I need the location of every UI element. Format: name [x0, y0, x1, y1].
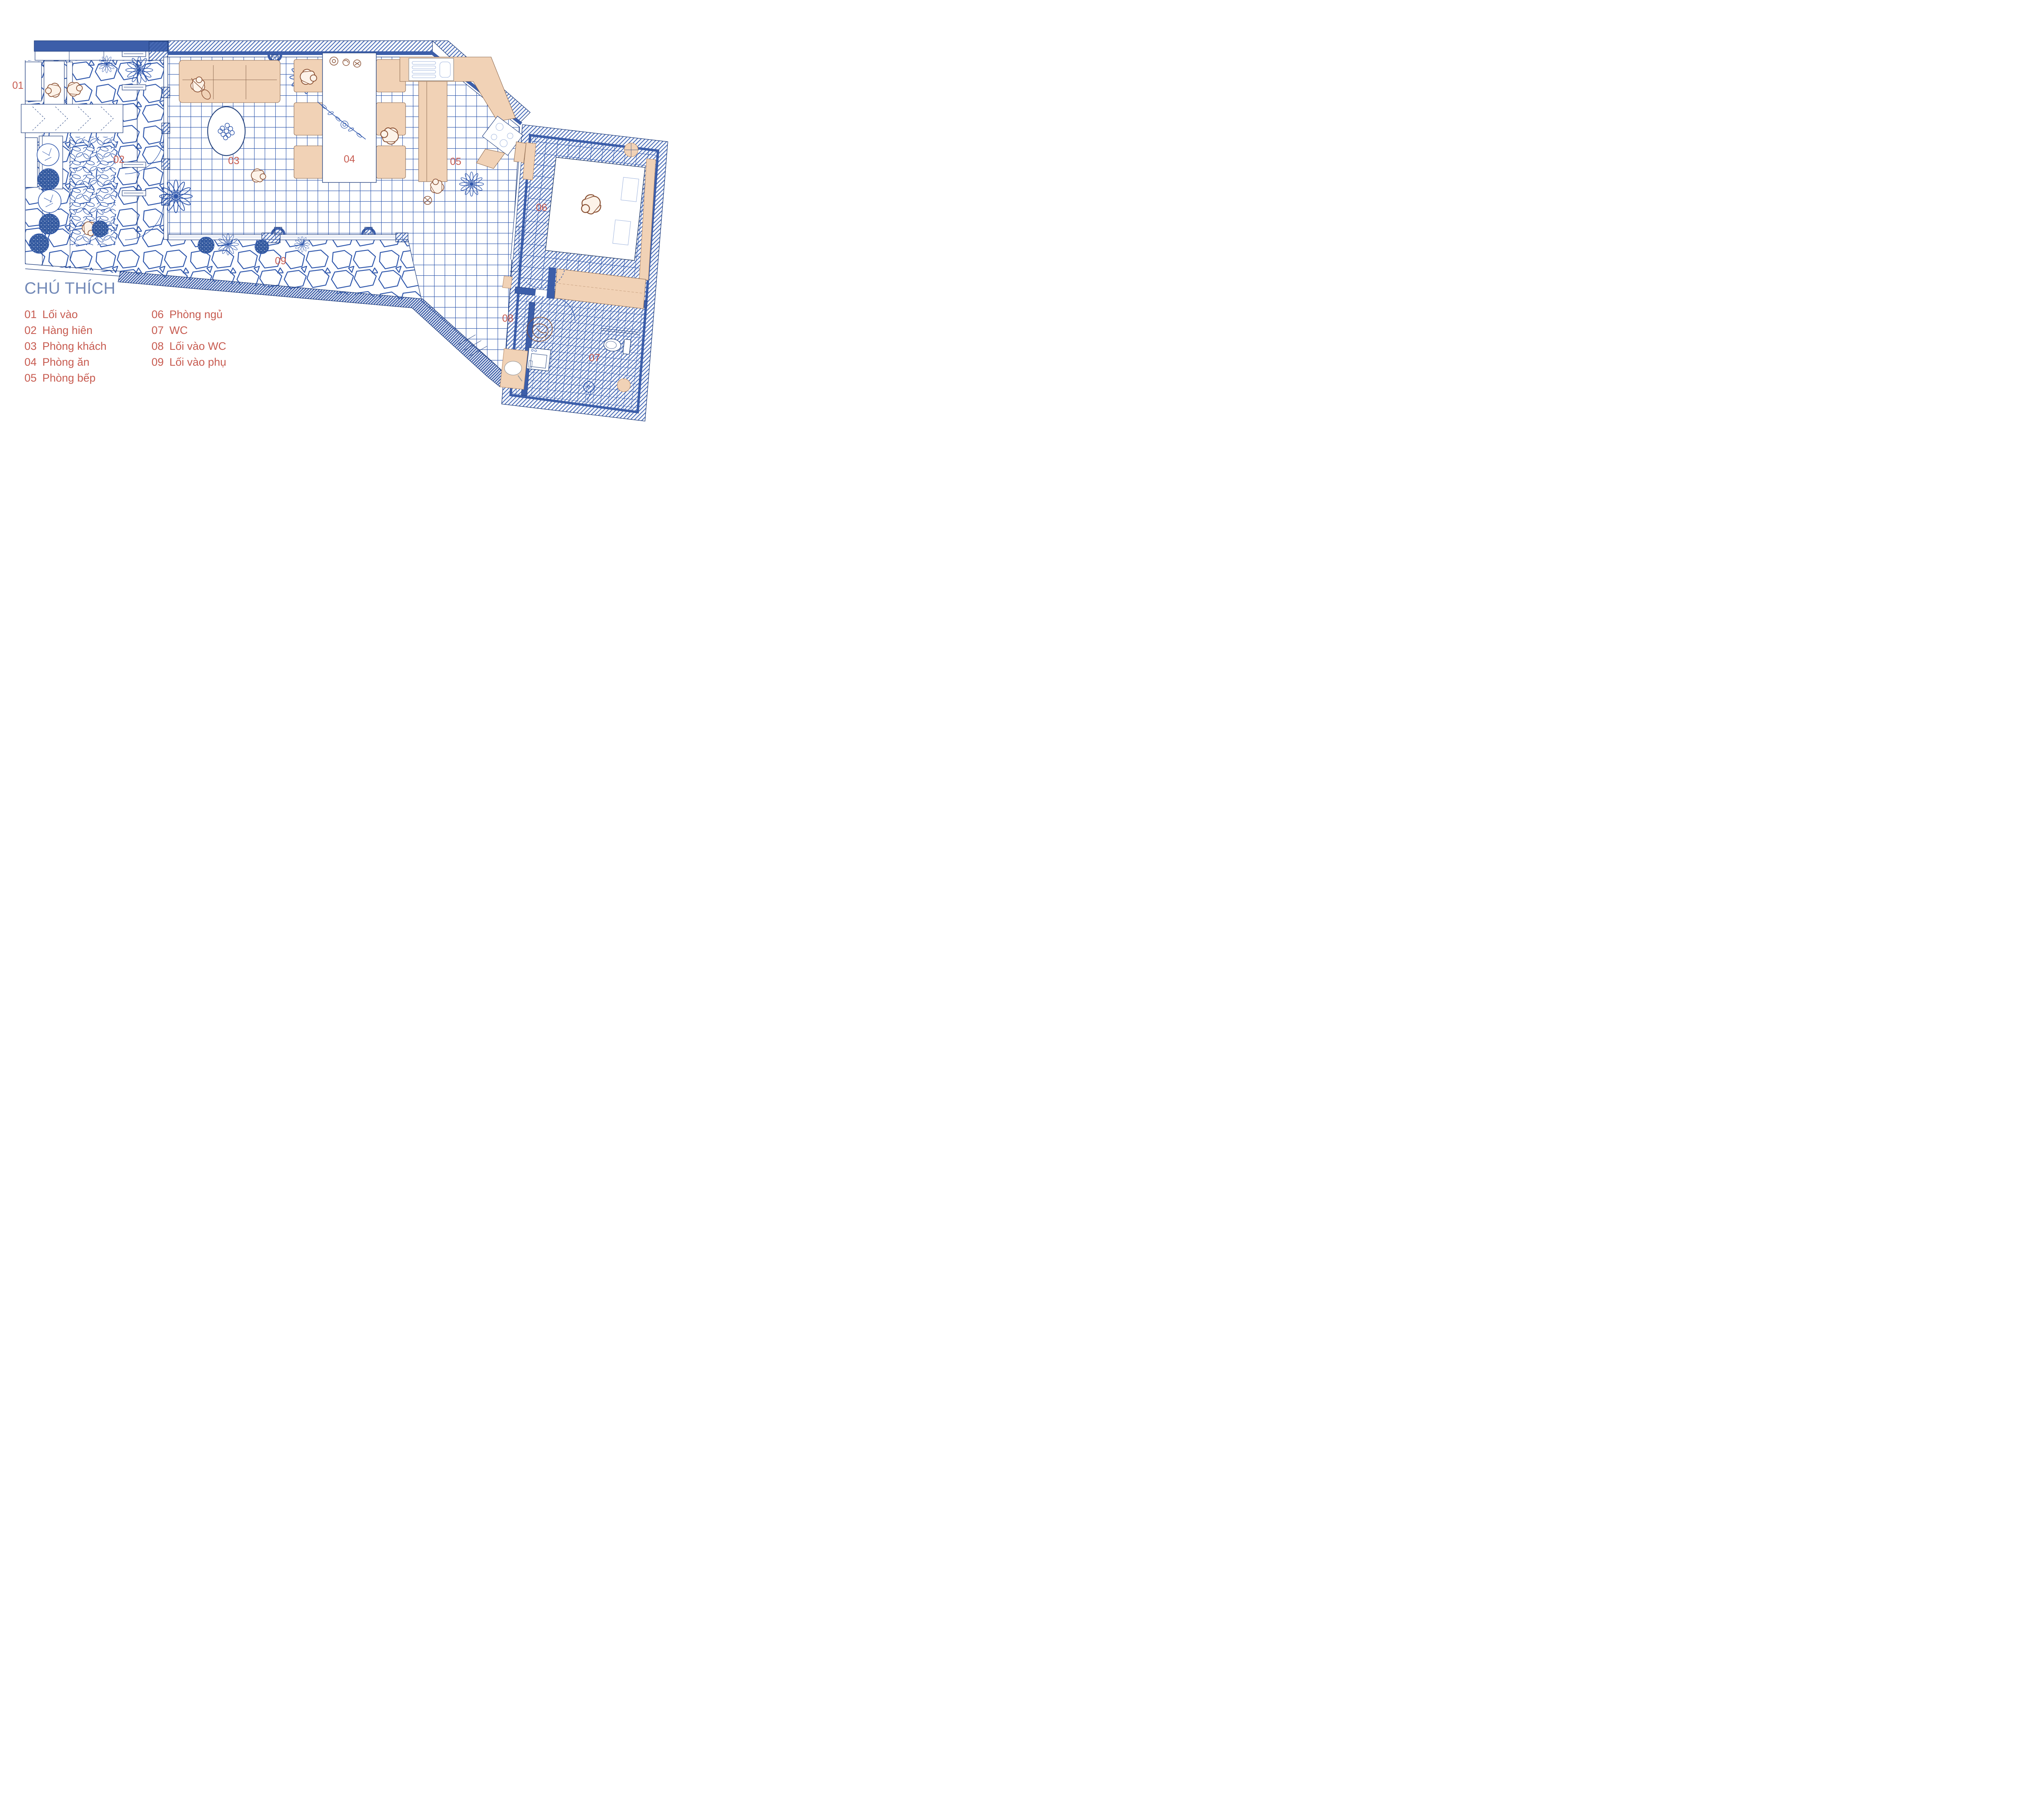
room-label-wc-entry: 08 — [502, 313, 513, 324]
chair — [294, 103, 323, 135]
legend-item-08: 08Lối vào WC — [151, 340, 226, 353]
legend-items: 01Lối vào 02Hàng hiên 03Phòng khách 04Ph… — [24, 308, 277, 394]
tree-icon — [38, 190, 61, 213]
wc-stool — [617, 379, 630, 392]
chair — [376, 146, 406, 178]
room-label-kitchen: 05 — [450, 156, 461, 167]
shrub-icon — [39, 214, 59, 234]
chair — [294, 146, 323, 178]
shrub-icon — [29, 234, 49, 253]
shrub-icon — [198, 237, 214, 253]
floor-plan-page: 01 02 03 04 05 06 07 08 09 CHÚ THÍCH 01L… — [0, 0, 682, 455]
legend-item-03: 03Phòng khách — [24, 340, 107, 353]
legend-item-06: 06Phòng ngủ — [151, 308, 223, 321]
sink-basin — [505, 361, 522, 375]
washing-machine — [527, 347, 551, 371]
shrub-icon — [92, 221, 108, 237]
shrub-icon — [38, 169, 59, 190]
coffee-table — [208, 107, 245, 156]
room-label-living: 03 — [228, 155, 239, 167]
walkway-chevrons — [21, 104, 123, 133]
legend-item-07: 07WC — [151, 324, 188, 337]
legend-item-01: 01Lối vào — [24, 308, 78, 321]
legend-item-02: 02Hàng hiên — [24, 324, 92, 337]
legend-item-09: 09Lối vào phụ — [151, 356, 226, 369]
legend-title: CHÚ THÍCH — [24, 279, 277, 298]
room-label-entrance: 01 — [12, 80, 24, 91]
legend-item-04: 04Phòng ăn — [24, 356, 90, 369]
sink-unit — [409, 58, 454, 81]
room-label-porch: 02 — [113, 154, 125, 165]
room-label-wc: 07 — [589, 352, 600, 364]
room-label-bedroom: 06 — [536, 202, 547, 213]
legend: CHÚ THÍCH 01Lối vào 02Hàng hiên 03Phòng … — [24, 279, 277, 394]
shrub-icon — [255, 240, 269, 254]
room-label-sec-entry: 09 — [275, 255, 286, 267]
room-label-dining: 04 — [344, 154, 355, 165]
legend-item-05: 05Phòng bếp — [24, 372, 96, 384]
